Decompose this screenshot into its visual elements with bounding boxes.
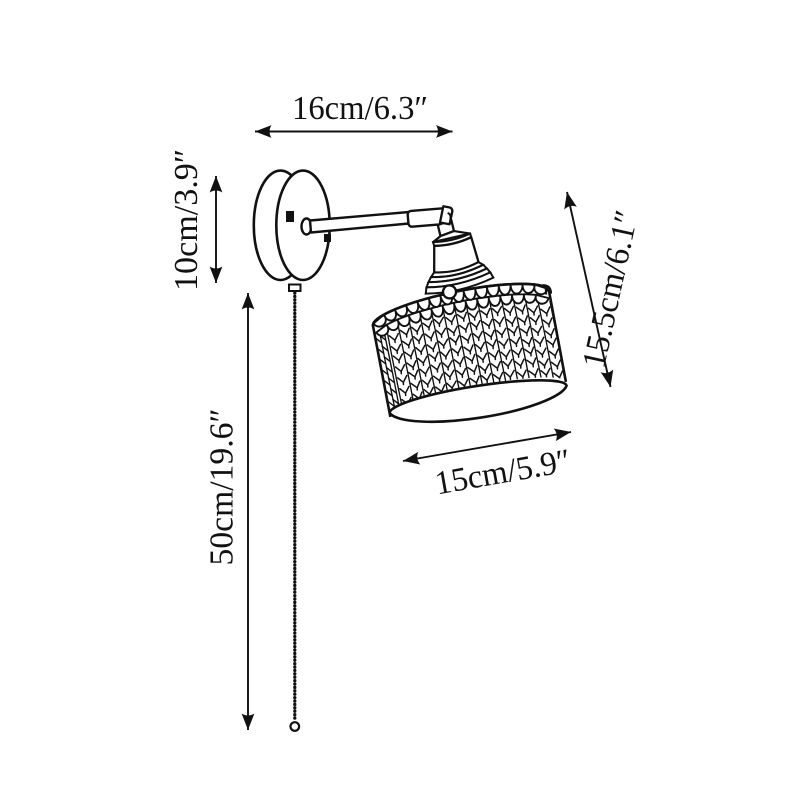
svg-text:50cm/19.6″: 50cm/19.6″ — [204, 409, 241, 566]
svg-text:15.5cm/6.1″: 15.5cm/6.1″ — [575, 207, 645, 371]
svg-text:10cm/3.9″: 10cm/3.9″ — [168, 149, 205, 291]
svg-text:16cm/6.3″: 16cm/6.3″ — [292, 90, 428, 127]
svg-text:15cm/5.9″: 15cm/5.9″ — [432, 442, 573, 502]
